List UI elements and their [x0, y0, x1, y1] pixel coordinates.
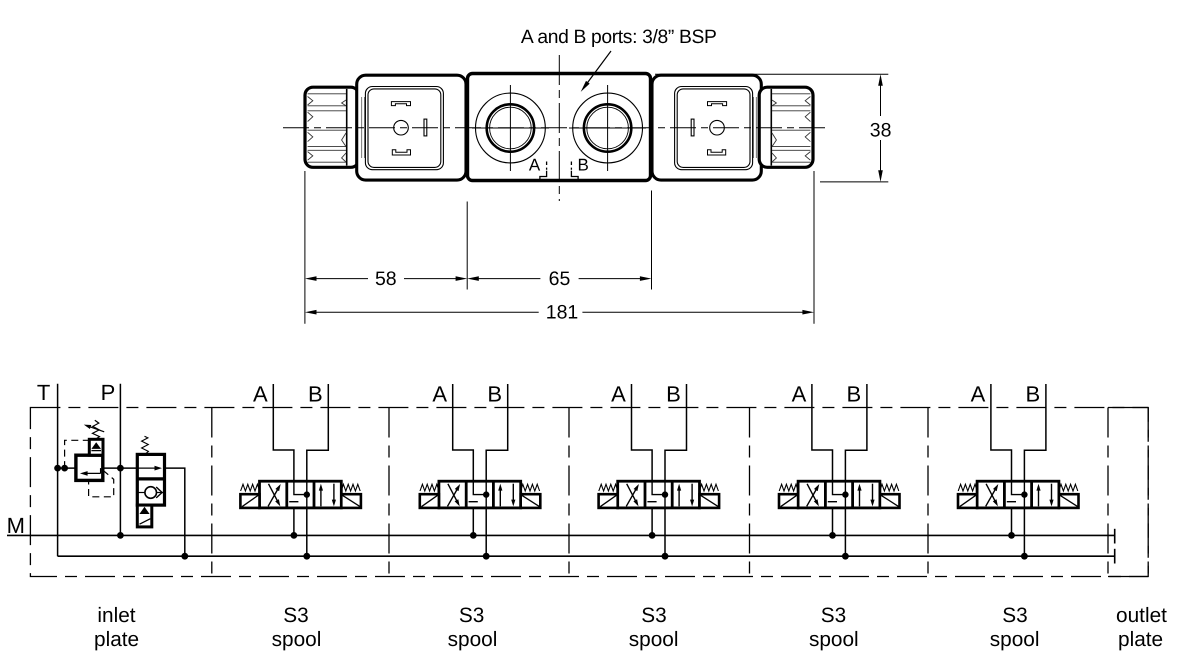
svg-text:plate: plate: [1118, 628, 1163, 651]
svg-text:T: T: [37, 380, 50, 405]
svg-text:S3: S3: [1002, 604, 1027, 627]
svg-text:58: 58: [375, 268, 397, 290]
svg-text:outlet: outlet: [1116, 604, 1167, 627]
svg-text:38: 38: [870, 119, 892, 141]
svg-text:A: A: [529, 156, 541, 175]
svg-text:spool: spool: [629, 628, 679, 651]
svg-text:spool: spool: [448, 628, 498, 651]
svg-text:B: B: [578, 155, 589, 174]
svg-text:spool: spool: [809, 628, 859, 651]
svg-text:S3: S3: [821, 604, 846, 627]
svg-text:S3: S3: [283, 604, 308, 627]
svg-text:inlet: inlet: [97, 604, 135, 627]
svg-text:A and B ports: 3/8” BSP: A and B ports: 3/8” BSP: [521, 27, 717, 48]
svg-text:P: P: [101, 380, 116, 405]
svg-text:M: M: [7, 513, 25, 538]
svg-text:spool: spool: [990, 628, 1040, 651]
svg-text:S3: S3: [459, 604, 484, 627]
svg-text:65: 65: [549, 268, 571, 290]
svg-text:plate: plate: [94, 628, 139, 651]
svg-text:S3: S3: [641, 604, 666, 627]
svg-text:181: 181: [546, 301, 579, 323]
svg-text:spool: spool: [272, 628, 322, 651]
